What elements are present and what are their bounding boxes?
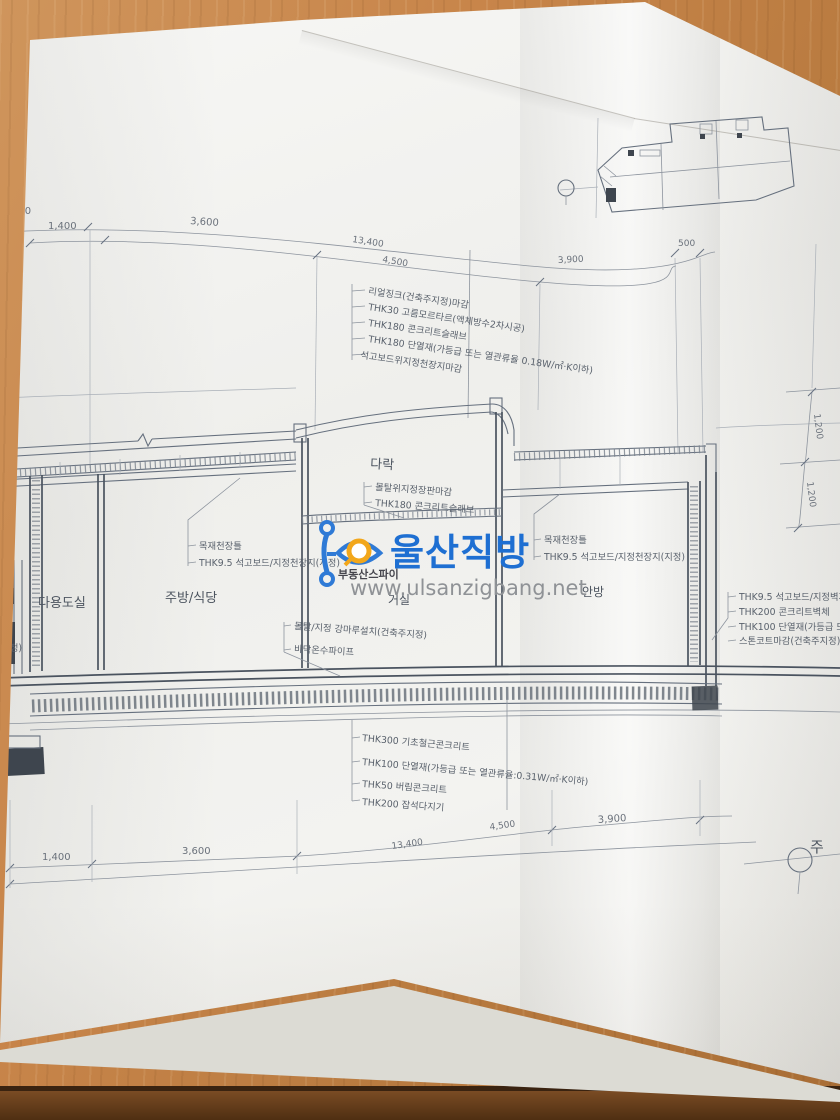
dim-bottom-3600: 3,600: [182, 846, 211, 857]
wall-note-right-3: THK100 단열재(가등급 또는: [738, 622, 840, 633]
room-label-master: 안방: [582, 585, 604, 599]
wall-note-right-4: 스톤코트마감(건축주지정): [739, 635, 840, 647]
dim-top-500-right: 500: [678, 239, 695, 249]
roof-structure: [0, 388, 840, 668]
dim-bottom-3900: 3,900: [597, 813, 626, 826]
dim-top-3600: 3,600: [190, 216, 219, 229]
section-drawing: 500 1,400 3,600 13,400 4,500 3,900 500 리…: [0, 0, 840, 1120]
ceiling-note-left-2: THK9.5 석고보드/지정천장지(지정): [198, 558, 340, 569]
dim-right-1200-a: 1,200: [811, 413, 824, 440]
wall-note-right-2: THK200 콘크리트벽체: [738, 607, 830, 618]
room-label-utility: 다용도실: [38, 596, 86, 611]
bottom-dimension-lines: [6, 780, 840, 894]
photo-of-blueprint: 500 1,400 3,600 13,400 4,500 3,900 500 리…: [0, 0, 840, 1120]
room-label-living: 거실: [388, 593, 410, 607]
dim-top-1400: 1,400: [48, 221, 77, 232]
dim-top-4500: 4,500: [381, 255, 408, 269]
key-floor-plan: [558, 117, 794, 218]
dim-top-3900: 3,900: [558, 255, 585, 266]
attic-note-1: 몰탈위지정장판마감: [375, 481, 453, 498]
ceiling-callout-left: [188, 478, 240, 566]
dim-bottom-13400: 13,400: [391, 838, 424, 852]
dim-right-1200-b: 1,200: [804, 481, 817, 508]
room-label-attic: 다락: [370, 457, 395, 473]
grid-marker-label: 주: [810, 838, 824, 856]
floor-note-2: 바닥온수파이프: [294, 644, 355, 658]
dim-bottom-4500: 4,500: [489, 819, 516, 833]
ceiling-note-left-1: 목재천장틀: [199, 541, 242, 552]
floor-note-1: 몰탈/지정 강마루설치(건축주지정): [294, 620, 428, 641]
ceiling-callout-right: [534, 494, 560, 560]
foundation-note-4: THK200 잡석다지기: [361, 796, 445, 814]
wall-structure: [0, 455, 716, 686]
foundation-callout: [352, 720, 360, 801]
ceiling-note-right-1: 목재천장틀: [544, 535, 587, 546]
foundation-note-1: THK300 기초철근콘크리트: [361, 733, 471, 753]
blueprint-paper-sheet: 500 1,400 3,600 13,400 4,500 3,900 500 리…: [0, 0, 840, 1120]
ceiling-note-right-2: THK9.5 석고보드/지정천장지(지정): [543, 552, 685, 563]
top-dimension-lines: [4, 223, 715, 468]
wall-note-right-1: THK9.5 석고보드/지정벽지: [738, 592, 840, 603]
foundation-note-3: THK50 버림콘크리트: [361, 778, 448, 796]
room-label-kitchen: 주방/식당: [165, 591, 217, 606]
dim-bottom-1400: 1,400: [42, 852, 71, 863]
